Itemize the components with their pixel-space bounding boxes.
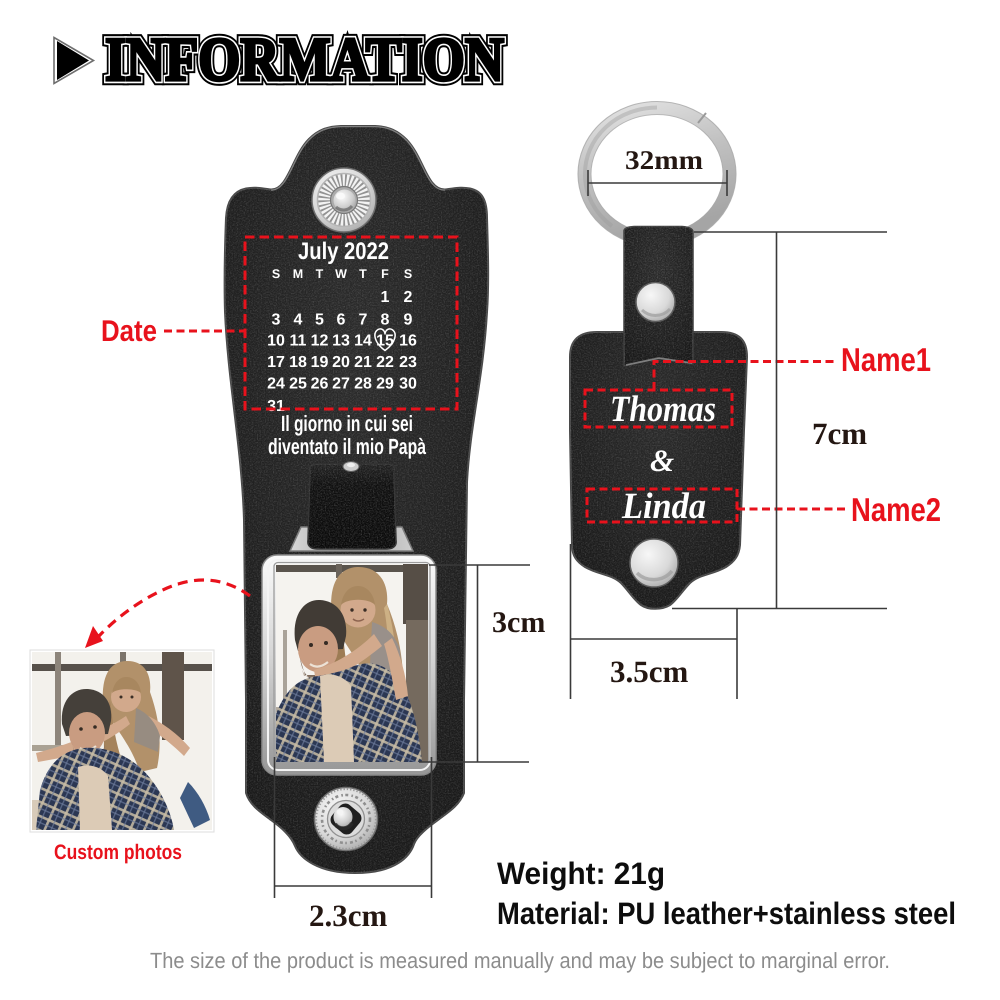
svg-text:Weight: 21g: Weight: 21g (497, 856, 665, 891)
svg-text:July 2022: July 2022 (298, 238, 389, 265)
svg-text:diventato il mio Papà: diventato il mio Papà (268, 434, 427, 459)
svg-text:The size of the product is mea: The size of the product is measured manu… (150, 948, 890, 973)
svg-text:32mm: 32mm (625, 145, 704, 175)
svg-text:Custom photos: Custom photos (54, 841, 182, 864)
svg-text:Name2: Name2 (851, 491, 941, 528)
svg-text:7cm: 7cm (812, 416, 867, 451)
svg-text:Thomas: Thomas (610, 389, 716, 430)
svg-text:&: & (650, 443, 674, 478)
svg-text:Name1: Name1 (841, 341, 931, 378)
svg-text:Il giorno in cui sei: Il giorno in cui sei (281, 411, 413, 436)
svg-text:Material: PU leather+stainless: Material: PU leather+stainless steel (497, 896, 956, 931)
svg-text:3.5cm: 3.5cm (610, 654, 689, 689)
svg-text:INFORMATION: INFORMATION (105, 26, 504, 94)
svg-text:2.3cm: 2.3cm (309, 898, 388, 933)
svg-text:3cm: 3cm (492, 606, 545, 639)
svg-text:Date: Date (101, 315, 157, 348)
